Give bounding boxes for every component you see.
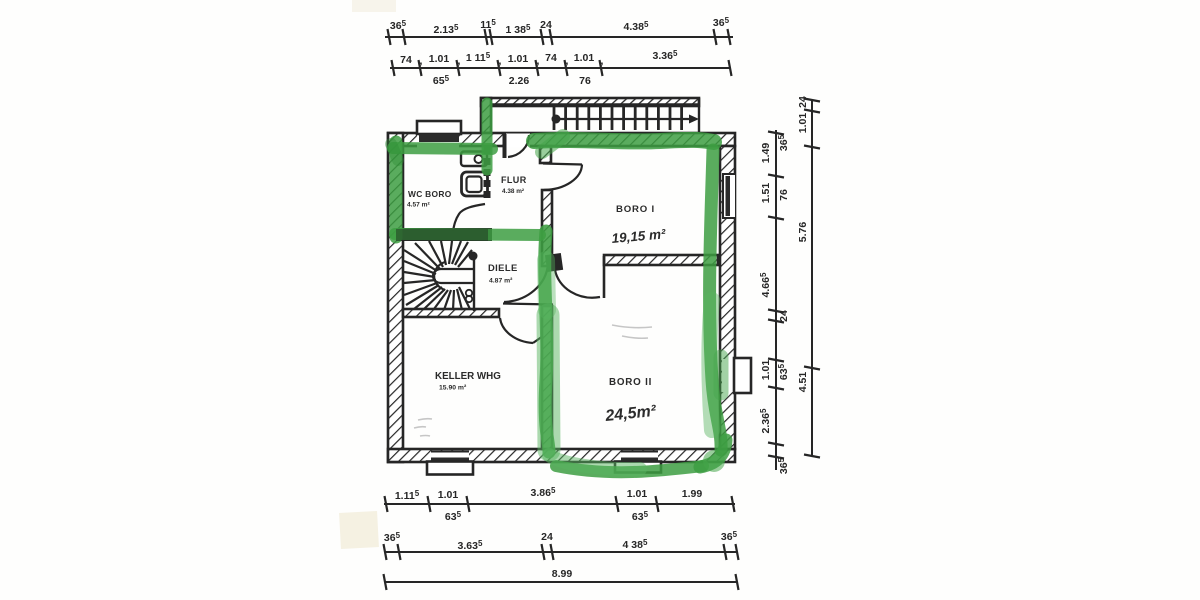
- svg-text:1.01: 1.01: [508, 53, 529, 65]
- svg-text:FLUR: FLUR: [501, 175, 527, 185]
- svg-text:DIELE: DIELE: [488, 262, 518, 273]
- svg-text:1.01: 1.01: [627, 488, 648, 500]
- svg-text:BORO II: BORO II: [609, 377, 652, 388]
- svg-text:1.01: 1.01: [760, 360, 772, 381]
- svg-text:1.01: 1.01: [797, 113, 809, 134]
- svg-text:,: ,: [499, 55, 502, 67]
- svg-text:1.01: 1.01: [429, 53, 450, 65]
- svg-text:,: ,: [601, 55, 604, 67]
- svg-text:2.26: 2.26: [509, 75, 530, 87]
- svg-text:1.51: 1.51: [760, 183, 772, 204]
- svg-text:4.51: 4.51: [797, 372, 809, 393]
- svg-text:1.01: 1.01: [438, 489, 459, 501]
- svg-text:76: 76: [778, 189, 790, 201]
- svg-text:KELLER WHG: KELLER WHG: [435, 371, 501, 382]
- svg-text:5.76: 5.76: [797, 222, 809, 243]
- svg-text:4.57 m²: 4.57 m²: [407, 202, 431, 209]
- svg-text:BORO I: BORO I: [616, 204, 655, 215]
- svg-text:1.49: 1.49: [760, 143, 772, 164]
- svg-text:24: 24: [797, 96, 809, 108]
- svg-text:74: 74: [400, 54, 412, 66]
- svg-text:,: ,: [566, 55, 569, 67]
- svg-text:74: 74: [545, 52, 557, 64]
- svg-text:,: ,: [420, 55, 423, 67]
- svg-text:15.90 m²: 15.90 m²: [439, 385, 467, 392]
- svg-text:4.87 m²: 4.87 m²: [489, 278, 513, 285]
- svg-text:,: ,: [458, 55, 461, 67]
- svg-text:24: 24: [541, 531, 553, 543]
- svg-text:24: 24: [778, 310, 790, 322]
- svg-text:1.99: 1.99: [682, 488, 703, 500]
- svg-text:4.38 m²: 4.38 m²: [502, 188, 524, 195]
- svg-text:1.01: 1.01: [574, 52, 595, 64]
- svg-text:WC BORO: WC BORO: [408, 189, 452, 199]
- svg-text:8.99: 8.99: [552, 568, 573, 580]
- svg-text:76: 76: [579, 75, 591, 87]
- svg-text:24: 24: [540, 19, 552, 31]
- svg-text:,: ,: [537, 55, 540, 67]
